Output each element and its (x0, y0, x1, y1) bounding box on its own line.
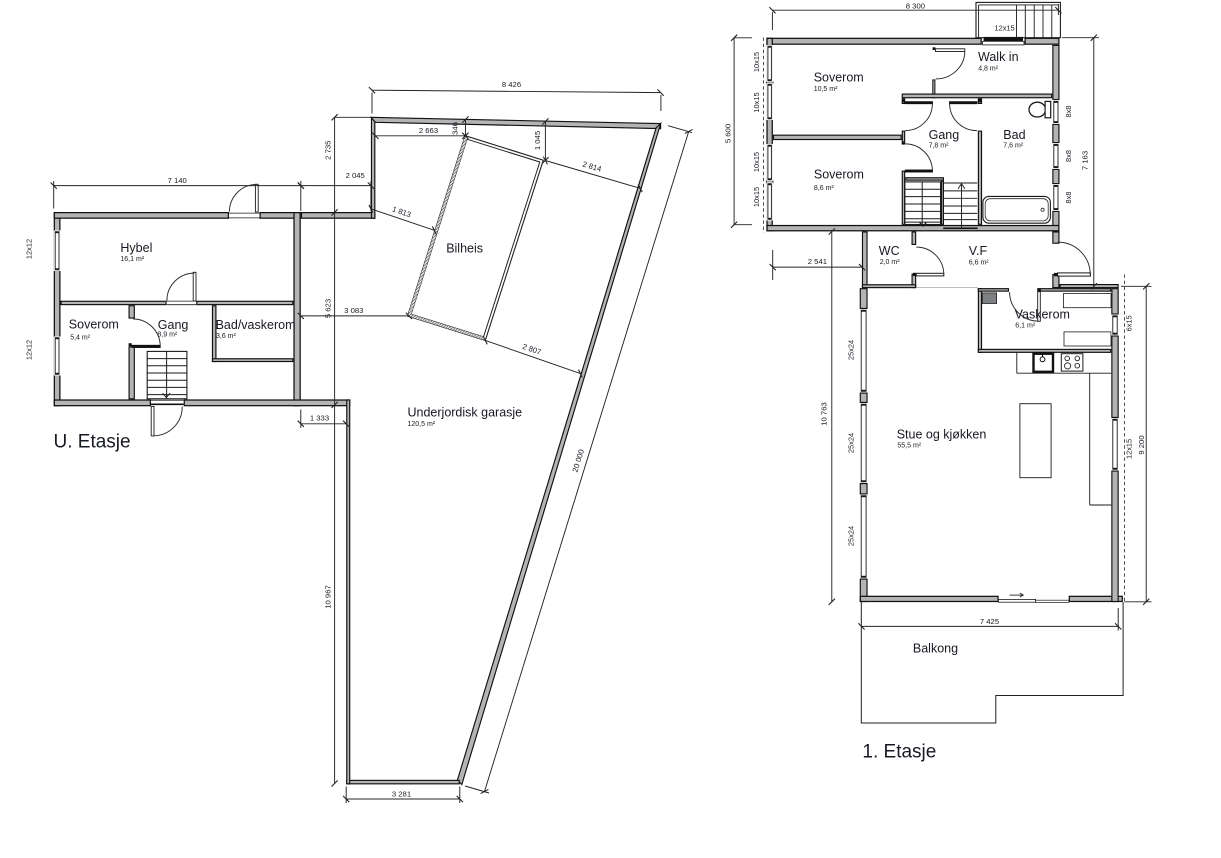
svg-text:2 541: 2 541 (808, 257, 827, 266)
svg-text:12x15: 12x15 (1124, 439, 1133, 459)
svg-text:Soverom: Soverom (814, 71, 864, 85)
svg-text:55,5 m²: 55,5 m² (897, 443, 921, 450)
svg-text:7 140: 7 140 (168, 176, 187, 185)
svg-text:U. Etasje: U. Etasje (54, 432, 131, 453)
svg-text:2 735: 2 735 (323, 141, 332, 160)
svg-text:7,8 m²: 7,8 m² (929, 143, 950, 150)
svg-text:Gang: Gang (929, 128, 960, 142)
svg-text:1 045: 1 045 (533, 131, 542, 150)
svg-text:25x24: 25x24 (847, 526, 856, 546)
svg-text:6,1 m²: 6,1 m² (1015, 323, 1036, 330)
svg-text:Underjordisk garasje: Underjordisk garasje (408, 406, 523, 420)
svg-text:4,8 m²: 4,8 m² (978, 65, 999, 72)
svg-text:3,6 m²: 3,6 m² (216, 333, 237, 340)
svg-text:7 425: 7 425 (980, 617, 999, 626)
svg-text:16,1 m²: 16,1 m² (120, 256, 144, 263)
svg-text:8,9 m²: 8,9 m² (157, 331, 178, 338)
svg-text:Hybel: Hybel (120, 241, 152, 255)
svg-text:Soverom: Soverom (69, 318, 119, 332)
svg-text:10 763: 10 763 (820, 402, 829, 426)
svg-text:7,6 m²: 7,6 m² (1003, 143, 1024, 150)
svg-text:5,4 m²: 5,4 m² (70, 334, 91, 341)
svg-text:Balkong: Balkong (913, 641, 958, 655)
svg-text:6,6 m²: 6,6 m² (969, 259, 990, 266)
svg-text:Bad/vaskerom: Bad/vaskerom (216, 318, 296, 332)
svg-text:3 083: 3 083 (344, 306, 363, 315)
svg-text:3 281: 3 281 (392, 790, 411, 799)
svg-text:WC: WC (879, 244, 900, 258)
svg-text:10x15: 10x15 (752, 52, 761, 72)
svg-text:25x24: 25x24 (847, 340, 856, 360)
svg-text:Stue og kjøkken: Stue og kjøkken (897, 428, 987, 442)
svg-text:120,5 m²: 120,5 m² (408, 421, 436, 428)
svg-text:12x15: 12x15 (995, 23, 1015, 32)
svg-text:12x12: 12x12 (25, 239, 34, 259)
svg-text:10,5 m²: 10,5 m² (814, 86, 838, 93)
svg-text:Gang: Gang (158, 318, 189, 332)
svg-text:Walk in: Walk in (978, 50, 1019, 64)
svg-text:Bad: Bad (1003, 128, 1025, 142)
svg-text:8x8: 8x8 (1064, 192, 1073, 204)
svg-text:Vaskerom: Vaskerom (1015, 308, 1070, 322)
svg-text:Bilheis: Bilheis (446, 241, 483, 255)
svg-text:7 163: 7 163 (1081, 151, 1090, 170)
svg-text:V.F: V.F (969, 244, 988, 258)
svg-text:8x8: 8x8 (1064, 106, 1073, 118)
svg-text:6x15: 6x15 (1124, 315, 1133, 331)
svg-text:10 967: 10 967 (323, 585, 332, 609)
svg-text:Soverom: Soverom (814, 168, 864, 182)
svg-text:8 300: 8 300 (906, 1, 925, 10)
svg-text:346: 346 (451, 122, 460, 135)
svg-text:25x24: 25x24 (847, 433, 856, 453)
svg-text:10x15: 10x15 (752, 152, 761, 172)
svg-text:8 426: 8 426 (502, 80, 521, 89)
svg-text:8x8: 8x8 (1064, 150, 1073, 162)
svg-text:12x12: 12x12 (25, 340, 34, 360)
svg-text:8,6 m²: 8,6 m² (814, 185, 835, 192)
svg-text:2,0 m²: 2,0 m² (880, 259, 901, 266)
svg-text:2 045: 2 045 (346, 171, 365, 180)
svg-text:9 200: 9 200 (1137, 435, 1146, 454)
svg-text:1. Etasje: 1. Etasje (862, 742, 936, 763)
svg-text:10x15: 10x15 (752, 92, 761, 112)
svg-text:10x15: 10x15 (752, 187, 761, 207)
svg-text:1 333: 1 333 (310, 414, 329, 423)
svg-text:2 663: 2 663 (419, 126, 438, 135)
svg-text:5 623: 5 623 (323, 299, 332, 318)
svg-text:5 600: 5 600 (724, 124, 733, 143)
